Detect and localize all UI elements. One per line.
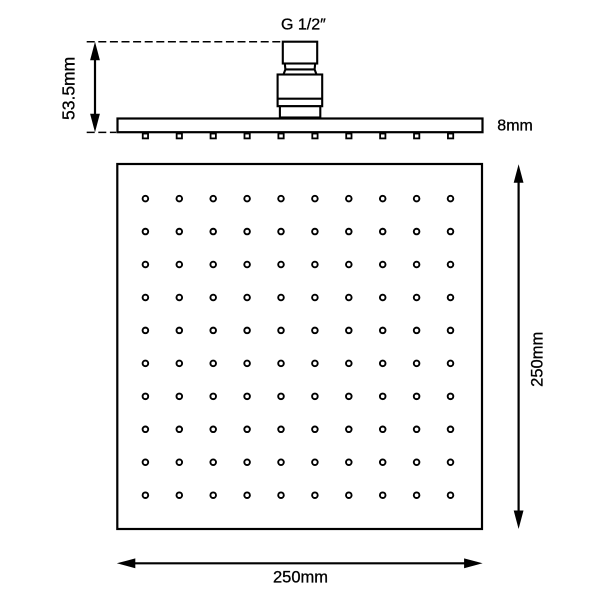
svg-text:8mm: 8mm — [497, 118, 533, 135]
svg-text:250mm: 250mm — [273, 568, 328, 586]
svg-text:G 1/2″: G 1/2″ — [281, 16, 326, 33]
svg-text:250mm: 250mm — [528, 332, 546, 387]
svg-text:53.5mm: 53.5mm — [59, 57, 79, 120]
